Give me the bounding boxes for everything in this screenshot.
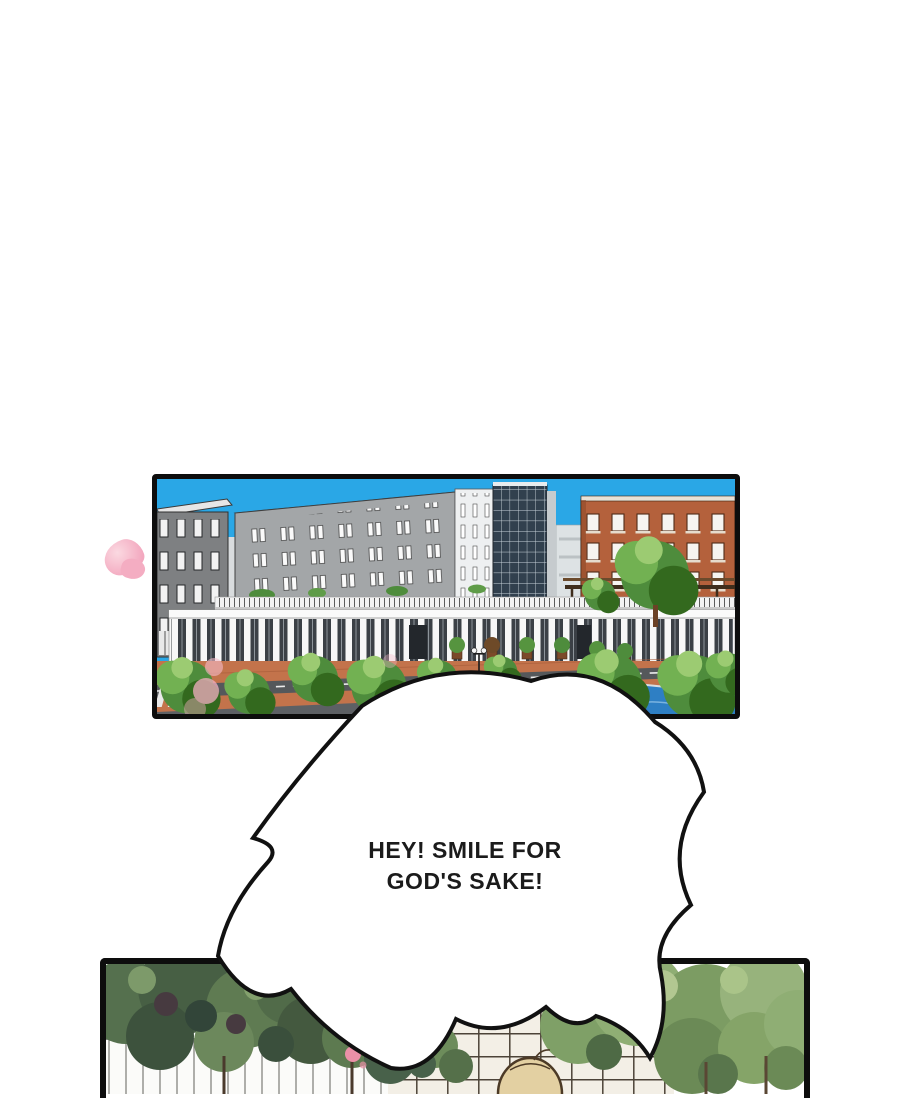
comic-page: { "bubble": { "line1": "HEY! SMILE FOR",…: [0, 0, 900, 1080]
cherry-petal: [104, 540, 150, 582]
glass-tower: [455, 482, 556, 601]
speech-bubble-text: HEY! SMILE FOR GOD'S SAKE!: [320, 835, 610, 897]
speech-line-2: GOD'S SAKE!: [320, 866, 610, 897]
speech-line-1: HEY! SMILE FOR: [320, 835, 610, 866]
